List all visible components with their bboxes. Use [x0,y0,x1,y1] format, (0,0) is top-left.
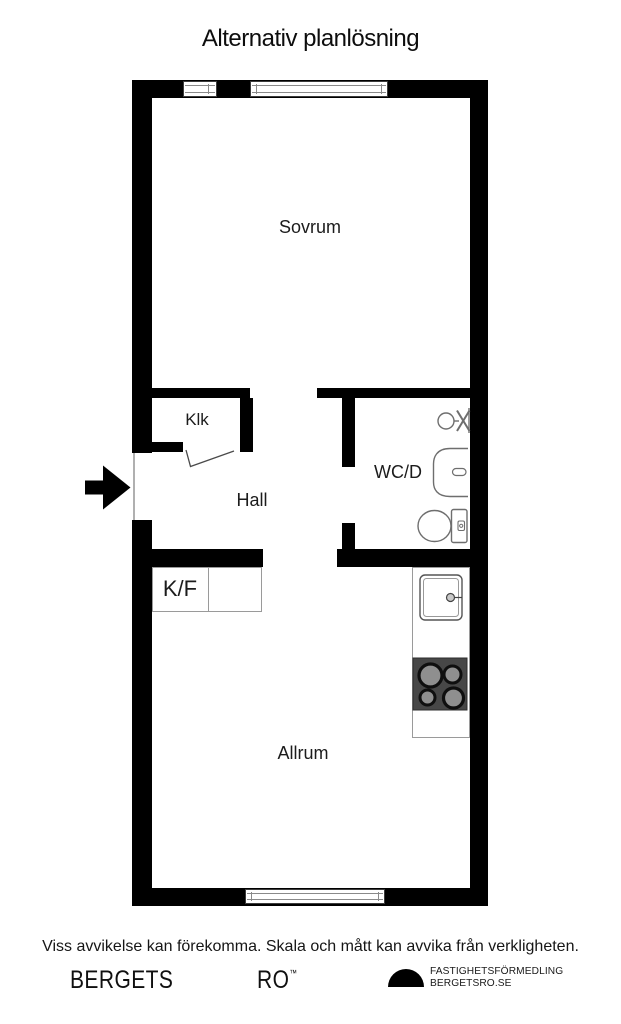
stove-icon [413,658,467,710]
floorplan-page: Alternativ planlösning Sovrum Klk Hall W… [0,0,621,1024]
disclaimer-text: Viss avvikelse kan förekomma. Skala och … [0,938,621,956]
brand-bergets: BERGETS [70,966,173,995]
brand-ro-text: RO [257,966,289,994]
agency-text: FASTIGHETSFÖRMEDLING BERGETSRO.SE [430,966,563,989]
entrance-arrow-icon [85,466,131,510]
toilet-icon [418,510,467,543]
agency-line1: FASTIGHETSFÖRMEDLING [430,966,563,978]
door-swing-icon [186,450,234,467]
trademark-symbol: ™ [289,968,297,978]
kitchen-sink-icon [420,575,462,620]
faucet-valve-icon [438,408,470,433]
fixtures-layer [0,0,621,1024]
agency-line2: BERGETSRO.SE [430,978,563,990]
brand-ro: RO™ [257,966,297,995]
sink-icon [434,449,469,497]
